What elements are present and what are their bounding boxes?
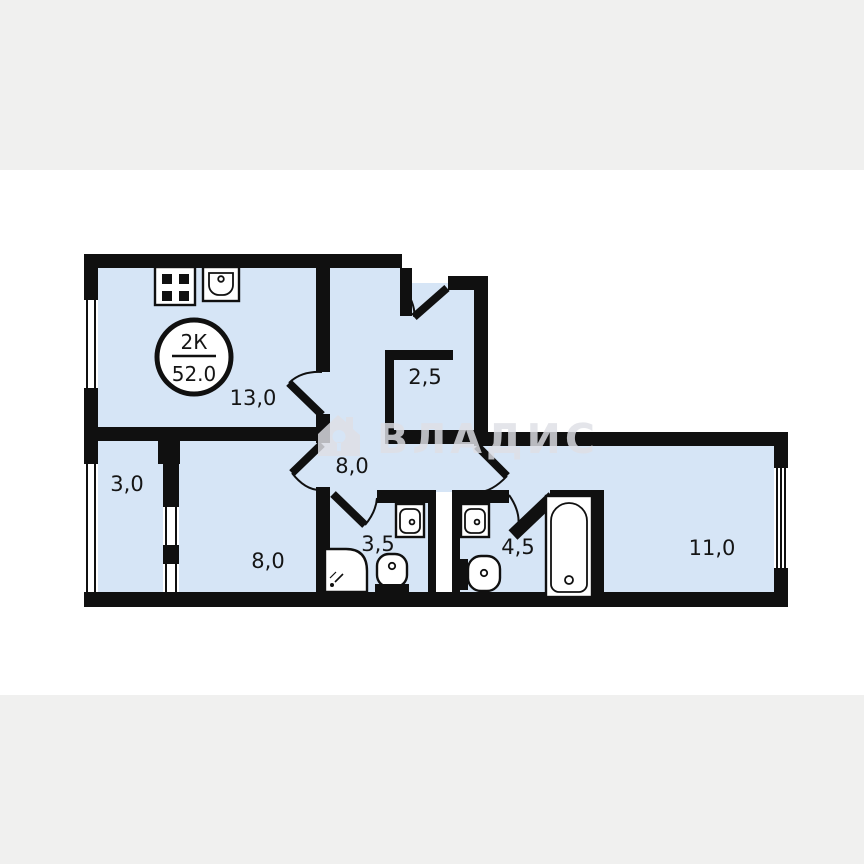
area-badge: 2К 52.0 <box>157 320 231 394</box>
room-label-living: 11,0 <box>689 536 736 560</box>
toilet-icon-bathroom-large <box>459 556 500 591</box>
sink-icon-bathroom-small <box>396 504 424 537</box>
floor-plan: 2К 52.0 13,0 2,5 8,0 3,0 8,0 3,5 4,5 11,… <box>0 0 864 864</box>
room-label-bathroom-large: 4,5 <box>501 535 534 559</box>
window-living-right <box>774 468 788 568</box>
window-balcony-left <box>84 464 98 592</box>
window-kitchen-left <box>84 300 98 388</box>
kitchen-sink-icon <box>203 267 239 301</box>
toilet-icon-bathroom-small <box>375 554 409 593</box>
watermark-text: ВЛАДИС <box>377 415 599 463</box>
badge-total-area: 52.0 <box>172 362 217 386</box>
stove-icon <box>155 267 195 305</box>
window-balcony-divider <box>163 507 179 545</box>
room-label-bedroom: 8,0 <box>251 549 284 573</box>
badge-room-count: 2К <box>181 330 208 354</box>
room-label-closet: 2,5 <box>408 365 441 389</box>
plumbing-shaft <box>436 492 452 592</box>
room-label-kitchen: 13,0 <box>230 386 277 410</box>
room-label-hall: 8,0 <box>335 454 368 478</box>
room-label-bathroom-small: 3,5 <box>361 532 394 556</box>
bathtub-icon <box>546 496 592 597</box>
balcony-door-panel <box>163 564 179 592</box>
sink-icon-bathroom-large <box>461 504 489 537</box>
room-label-balcony: 3,0 <box>110 472 143 496</box>
